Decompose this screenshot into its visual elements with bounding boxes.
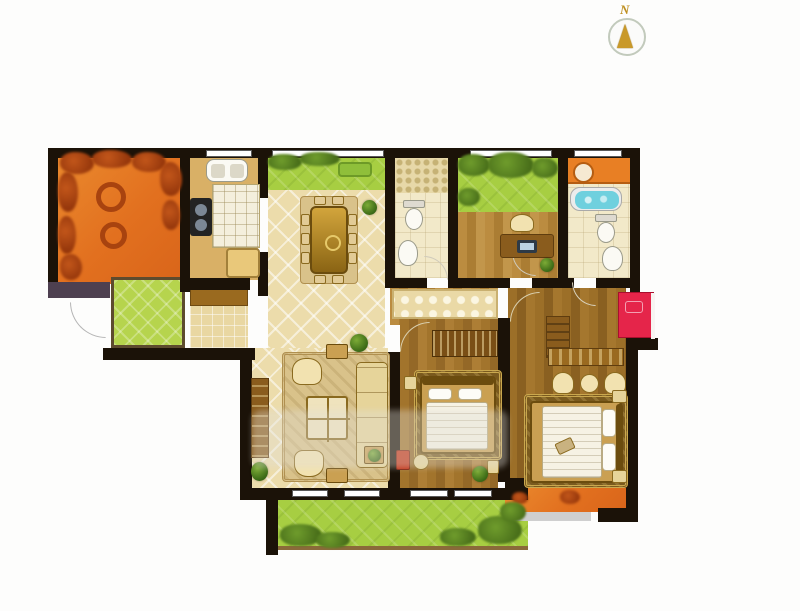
- dining-chair: [301, 233, 310, 245]
- garden-shrub: [458, 154, 490, 176]
- wall-bathroom1-south: [385, 278, 427, 288]
- window-master-bathroom: [574, 150, 622, 157]
- compass-north-label: N: [620, 2, 629, 18]
- hallway-runner-rug: [392, 289, 498, 319]
- master-bath-washbasin: [602, 246, 623, 271]
- bathroom1-shower-area: [395, 158, 448, 193]
- bedroom2-wardrobe: [432, 330, 498, 357]
- bedroom2-nightstand: [404, 376, 417, 390]
- terrace-foliage: [58, 172, 78, 212]
- garden-shrub: [458, 188, 480, 206]
- wall-bathroom1-east: [448, 148, 458, 288]
- study-desk: [500, 234, 554, 258]
- dining-chair: [332, 275, 344, 284]
- bathroom1-toilet-tank: [403, 200, 425, 208]
- living-plant: [350, 334, 368, 352]
- living-armchair: [292, 358, 322, 385]
- terrace-foliage: [60, 254, 82, 280]
- garden-shrub: [488, 152, 534, 178]
- shoe-cabinet: [190, 288, 248, 306]
- entry-hall-floor: [190, 306, 248, 348]
- terrace-foliage: [160, 162, 182, 196]
- master-chair: [552, 372, 574, 394]
- dining-chair: [348, 214, 357, 226]
- garden-bench: [338, 162, 372, 177]
- dining-plant: [362, 200, 377, 215]
- master-bath-toilet: [597, 222, 615, 243]
- wall-kitchen-south: [180, 278, 250, 290]
- wall-terrace-kitchen: [180, 150, 190, 292]
- window-kitchen: [206, 150, 252, 157]
- window-living-south-1: [292, 490, 328, 497]
- kitchen-fridge: [226, 248, 260, 278]
- south-balcony-shrub: [500, 502, 526, 522]
- wall-entry-south: [103, 348, 255, 360]
- terrace-foliage: [60, 152, 94, 174]
- dining-chair: [348, 233, 357, 245]
- master-bath-vanity: [568, 158, 630, 184]
- terrace-foliage: [92, 150, 132, 168]
- kitchen-sink: [206, 159, 248, 182]
- terrace-round-chair: [96, 182, 126, 212]
- master-nightstand: [612, 470, 627, 483]
- dining-chair: [314, 275, 326, 284]
- watermark: [252, 410, 508, 468]
- wall-garden-masterbath: [558, 148, 568, 288]
- entry-porch-floor: [111, 277, 185, 348]
- master-bath-bathtub: [570, 187, 622, 211]
- master-bed-headboard: [616, 404, 623, 480]
- bedroom2-plant: [472, 466, 488, 482]
- kitchen-counter: [212, 184, 260, 248]
- master-chair: [580, 374, 599, 393]
- study-chair: [510, 214, 534, 232]
- entry-door-swing: [70, 302, 106, 338]
- window-bedroom2-south-1: [410, 490, 448, 497]
- terrace-round-chair: [100, 222, 127, 249]
- master-low-dresser: [548, 348, 624, 366]
- bedroom2-bed-pillow: [428, 388, 452, 400]
- south-balcony-shrub: [440, 528, 476, 546]
- wall-study-south-west: [448, 278, 510, 288]
- dining-chair: [332, 196, 344, 205]
- terrace-foliage: [58, 216, 76, 254]
- study-plant: [540, 258, 554, 272]
- living-side-table: [326, 468, 348, 483]
- kitchen-cooktop: [190, 198, 212, 236]
- wall-southeast-corner: [598, 508, 638, 522]
- south-balcony-rail: [278, 546, 528, 550]
- north-balcony-shrub: [300, 152, 340, 166]
- garden-shrub: [532, 158, 558, 178]
- southeast-balcony-foliage: [560, 490, 580, 504]
- wall-east-upper: [630, 148, 640, 295]
- dining-chair: [348, 252, 357, 264]
- bathroom1-washbasin: [398, 240, 418, 266]
- living-side-table: [326, 344, 348, 359]
- wall-west-terrace: [48, 148, 58, 298]
- wall-terrace-south: [48, 282, 110, 298]
- master-nightstand: [612, 390, 627, 403]
- dining-chair: [314, 196, 326, 205]
- master-bath-toilet-tank: [595, 214, 617, 222]
- master-red-wardrobe: [618, 292, 654, 338]
- dining-chair: [301, 214, 310, 226]
- floor-plan: N: [0, 0, 800, 611]
- south-balcony-shrub: [316, 532, 350, 548]
- dining-table: [310, 206, 348, 274]
- compass-needle-icon: [617, 24, 633, 48]
- compass: N: [600, 2, 652, 60]
- dining-chair: [301, 252, 310, 264]
- terrace-foliage: [162, 200, 180, 230]
- north-balcony-shrub: [268, 154, 302, 170]
- wall-wardrobe-niche: [626, 338, 658, 350]
- master-bed-pillow: [602, 409, 616, 437]
- window-bedroom2-south-2: [454, 490, 492, 497]
- wall-bathroom1-west: [385, 148, 395, 288]
- master-bed-pillow: [602, 443, 616, 471]
- bedroom2-bed-pillow: [458, 388, 482, 400]
- bathroom1-toilet: [405, 208, 423, 230]
- bedroom2-bed-headboard: [422, 377, 494, 385]
- window-living-south-2: [344, 490, 380, 497]
